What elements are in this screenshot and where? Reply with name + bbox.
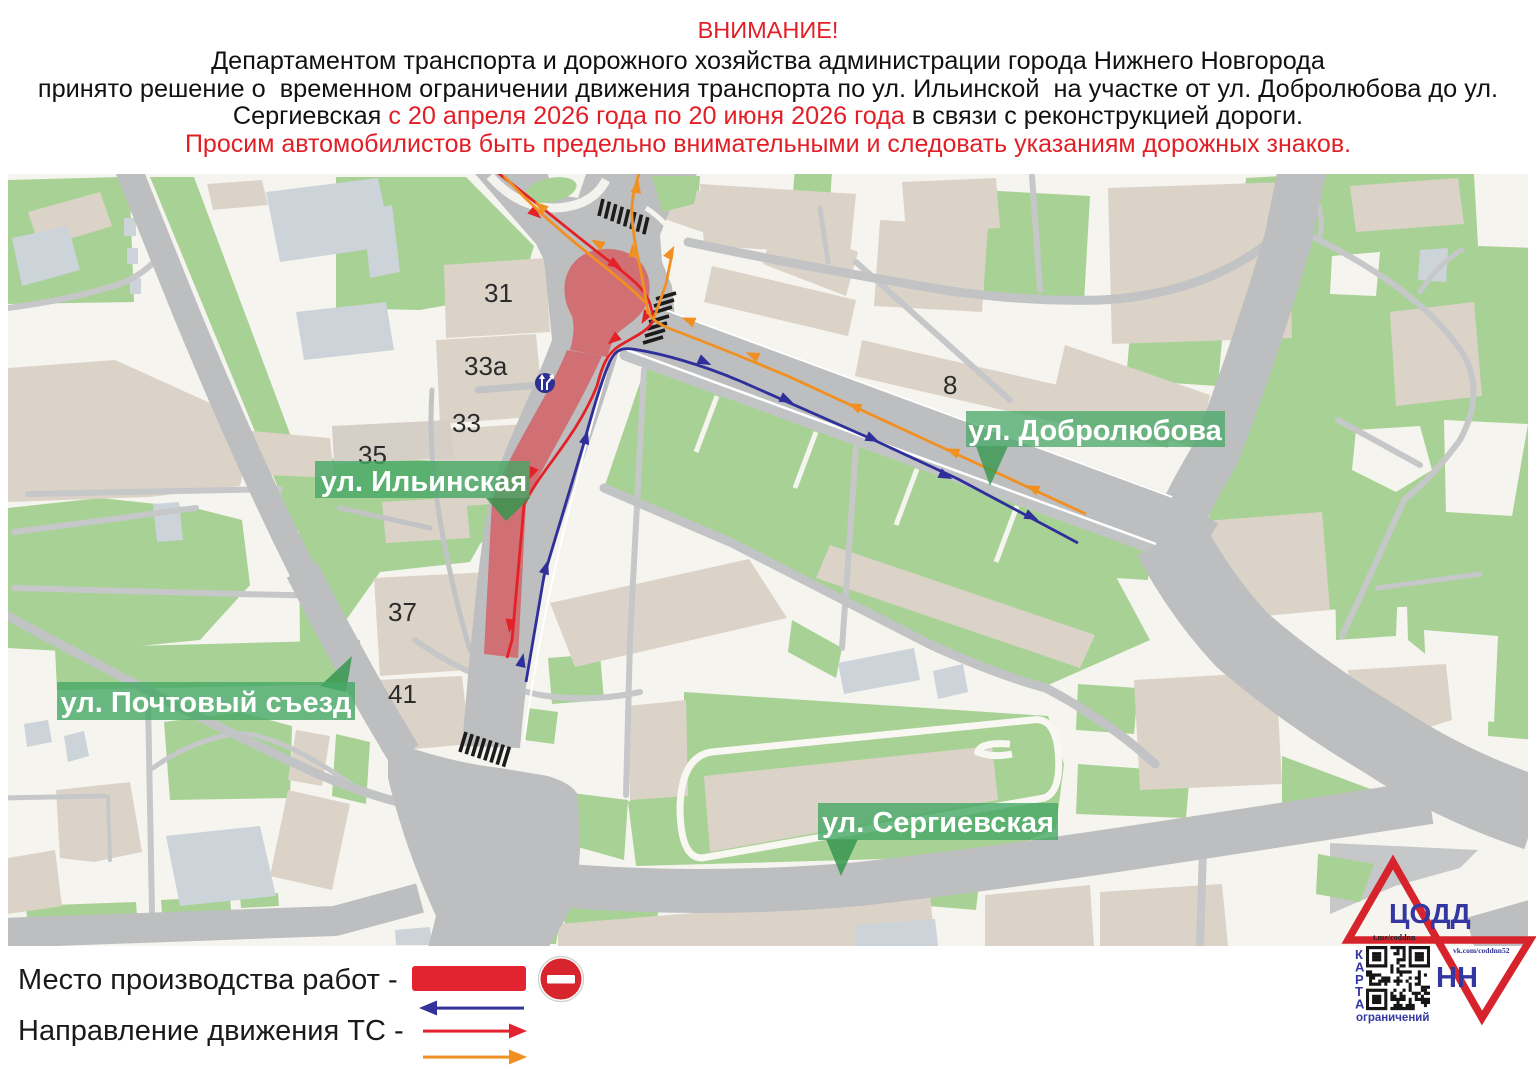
svg-text:33а: 33а (464, 351, 508, 381)
svg-text:ЦОДД: ЦОДД (1389, 898, 1471, 929)
svg-text:41: 41 (388, 679, 417, 709)
svg-text:НН: НН (1436, 962, 1478, 994)
svg-text:Направление движения ТС -: Направление движения ТС - (18, 1015, 404, 1047)
svg-text:ул. Почтовый съезд: ул. Почтовый съезд (61, 687, 352, 719)
svg-text:31: 31 (484, 278, 513, 308)
svg-text:ул. Ильинская: ул. Ильинская (321, 466, 527, 498)
svg-text:33: 33 (452, 408, 481, 438)
svg-text:8: 8 (943, 370, 957, 400)
svg-text:t.me/coddnn: t.me/coddnn (1373, 933, 1416, 942)
svg-text:ограничений: ограничений (1356, 1012, 1429, 1024)
svg-text:А: А (1355, 997, 1365, 1012)
svg-text:ул. Сергиевская: ул. Сергиевская (822, 807, 1054, 839)
svg-text:Место производства работ -: Место производства работ - (18, 964, 398, 996)
svg-text:vk.com/coddnn52: vk.com/coddnn52 (1453, 946, 1510, 955)
svg-text:37: 37 (388, 597, 417, 627)
svg-text:ул. Добролюбова: ул. Добролюбова (968, 415, 1223, 447)
